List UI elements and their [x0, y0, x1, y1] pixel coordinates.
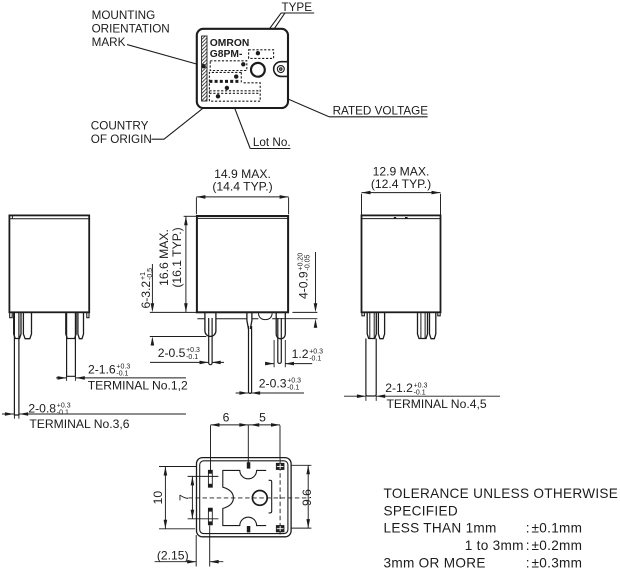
svg-text:-0.1: -0.1	[309, 355, 321, 362]
svg-text:Lot No.: Lot No.	[253, 136, 291, 149]
svg-text::: :	[526, 538, 530, 553]
svg-text:(16.1 TYP.): (16.1 TYP.)	[170, 227, 184, 287]
svg-text:+0.3: +0.3	[116, 364, 130, 371]
svg-text:5: 5	[259, 410, 266, 424]
svg-text:10: 10	[151, 491, 165, 505]
svg-text:RATED VOLTAGE: RATED VOLTAGE	[333, 105, 429, 118]
svg-text:(12.4 TYP.): (12.4 TYP.)	[371, 177, 431, 191]
svg-text:±0.1mm: ±0.1mm	[532, 521, 583, 536]
svg-text:7: 7	[177, 494, 191, 501]
svg-text:2-0.5: 2-0.5	[158, 346, 186, 360]
svg-text:G8PM-: G8PM-	[210, 49, 243, 60]
svg-text:TOLERANCE UNLESS OTHERWISE: TOLERANCE UNLESS OTHERWISE	[384, 486, 619, 501]
svg-text:-0.5: -0.5	[147, 268, 154, 280]
svg-text:2-0.8: 2-0.8	[28, 401, 56, 415]
svg-text:COUNTRY: COUNTRY	[91, 120, 149, 133]
svg-text:+0.3: +0.3	[186, 347, 200, 354]
svg-text:+0.3: +0.3	[309, 348, 323, 355]
svg-text:2-1.2: 2-1.2	[385, 381, 413, 395]
svg-text:2-1.6: 2-1.6	[88, 363, 116, 377]
svg-text:-0.1: -0.1	[186, 354, 198, 361]
svg-text:TERMINAL No.1,2: TERMINAL No.1,2	[88, 379, 188, 393]
svg-text:-0.1: -0.1	[287, 385, 299, 392]
svg-text:±0.2mm: ±0.2mm	[532, 538, 583, 553]
svg-text::: :	[526, 556, 530, 571]
svg-text:TERMINAL No.4,5: TERMINAL No.4,5	[387, 397, 487, 411]
svg-text:3mm OR MORE: 3mm OR MORE	[384, 556, 486, 571]
svg-text:9.6: 9.6	[300, 489, 314, 506]
svg-text:MOUNTING: MOUNTING	[92, 9, 156, 22]
svg-text:±0.3mm: ±0.3mm	[532, 556, 583, 571]
svg-text:+0.3: +0.3	[287, 378, 301, 385]
svg-text:SPECIFIED: SPECIFIED	[384, 503, 458, 518]
svg-text:+0.3: +0.3	[414, 382, 428, 389]
svg-text:OF ORIGIN: OF ORIGIN	[91, 133, 152, 146]
svg-text:-0.1: -0.1	[414, 389, 426, 396]
svg-text:+1: +1	[140, 272, 147, 280]
svg-text:LESS THAN 1mm: LESS THAN 1mm	[384, 521, 497, 536]
svg-text:+0.20: +0.20	[298, 253, 305, 271]
svg-text:-0.1: -0.1	[57, 410, 69, 417]
svg-text::: :	[526, 521, 530, 536]
svg-text:6: 6	[223, 410, 230, 424]
svg-text:4-0.9: 4-0.9	[297, 271, 311, 299]
svg-text:+0.3: +0.3	[57, 403, 71, 410]
svg-text:-0.05: -0.05	[305, 254, 312, 270]
svg-text:OMRON: OMRON	[210, 38, 249, 49]
svg-text:(14.4 TYP.): (14.4 TYP.)	[212, 179, 272, 193]
svg-text:MARK: MARK	[92, 36, 126, 49]
svg-text:TYPE: TYPE	[282, 1, 313, 14]
svg-text:2-0.3: 2-0.3	[259, 376, 287, 390]
svg-text:(2.15): (2.15)	[157, 548, 189, 562]
svg-text:-0.1: -0.1	[116, 371, 128, 378]
svg-text:ORIENTATION: ORIENTATION	[92, 23, 170, 36]
svg-text:1 to 3mm: 1 to 3mm	[465, 538, 524, 553]
svg-text:TERMINAL No.3,6: TERMINAL No.3,6	[29, 417, 129, 431]
svg-text:1.2: 1.2	[292, 347, 309, 361]
